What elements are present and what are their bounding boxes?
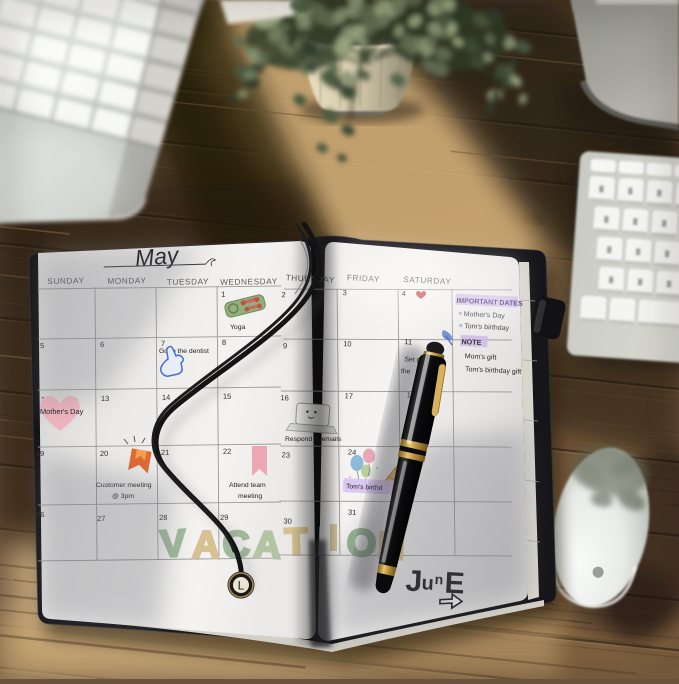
- svg-text:15: 15: [223, 392, 231, 401]
- svg-text:11: 11: [404, 337, 412, 346]
- svg-text:L: L: [238, 579, 245, 593]
- svg-text:17: 17: [344, 391, 353, 400]
- svg-text:2: 2: [281, 290, 286, 299]
- svg-text:13: 13: [101, 394, 109, 403]
- svg-text:22: 22: [223, 447, 231, 456]
- svg-text:WEDNESDAY: WEDNESDAY: [220, 277, 278, 287]
- svg-text:Attend team: Attend team: [229, 482, 266, 489]
- svg-text:14: 14: [162, 393, 170, 402]
- svg-text:23: 23: [281, 450, 290, 459]
- svg-text:10: 10: [343, 339, 352, 348]
- svg-text:20: 20: [100, 449, 108, 458]
- svg-text:NOTE: NOTE: [461, 337, 482, 347]
- svg-text:meeting: meeting: [238, 493, 262, 500]
- svg-text:31: 31: [348, 508, 357, 517]
- svg-text:16: 16: [280, 393, 289, 402]
- svg-text:A: A: [192, 524, 221, 567]
- svg-text:1: 1: [221, 290, 225, 299]
- svg-text:7: 7: [161, 339, 165, 348]
- svg-text:8: 8: [222, 338, 226, 347]
- svg-text:30: 30: [283, 516, 292, 525]
- svg-text:Yoga: Yoga: [230, 324, 245, 331]
- svg-text:A: A: [253, 524, 283, 567]
